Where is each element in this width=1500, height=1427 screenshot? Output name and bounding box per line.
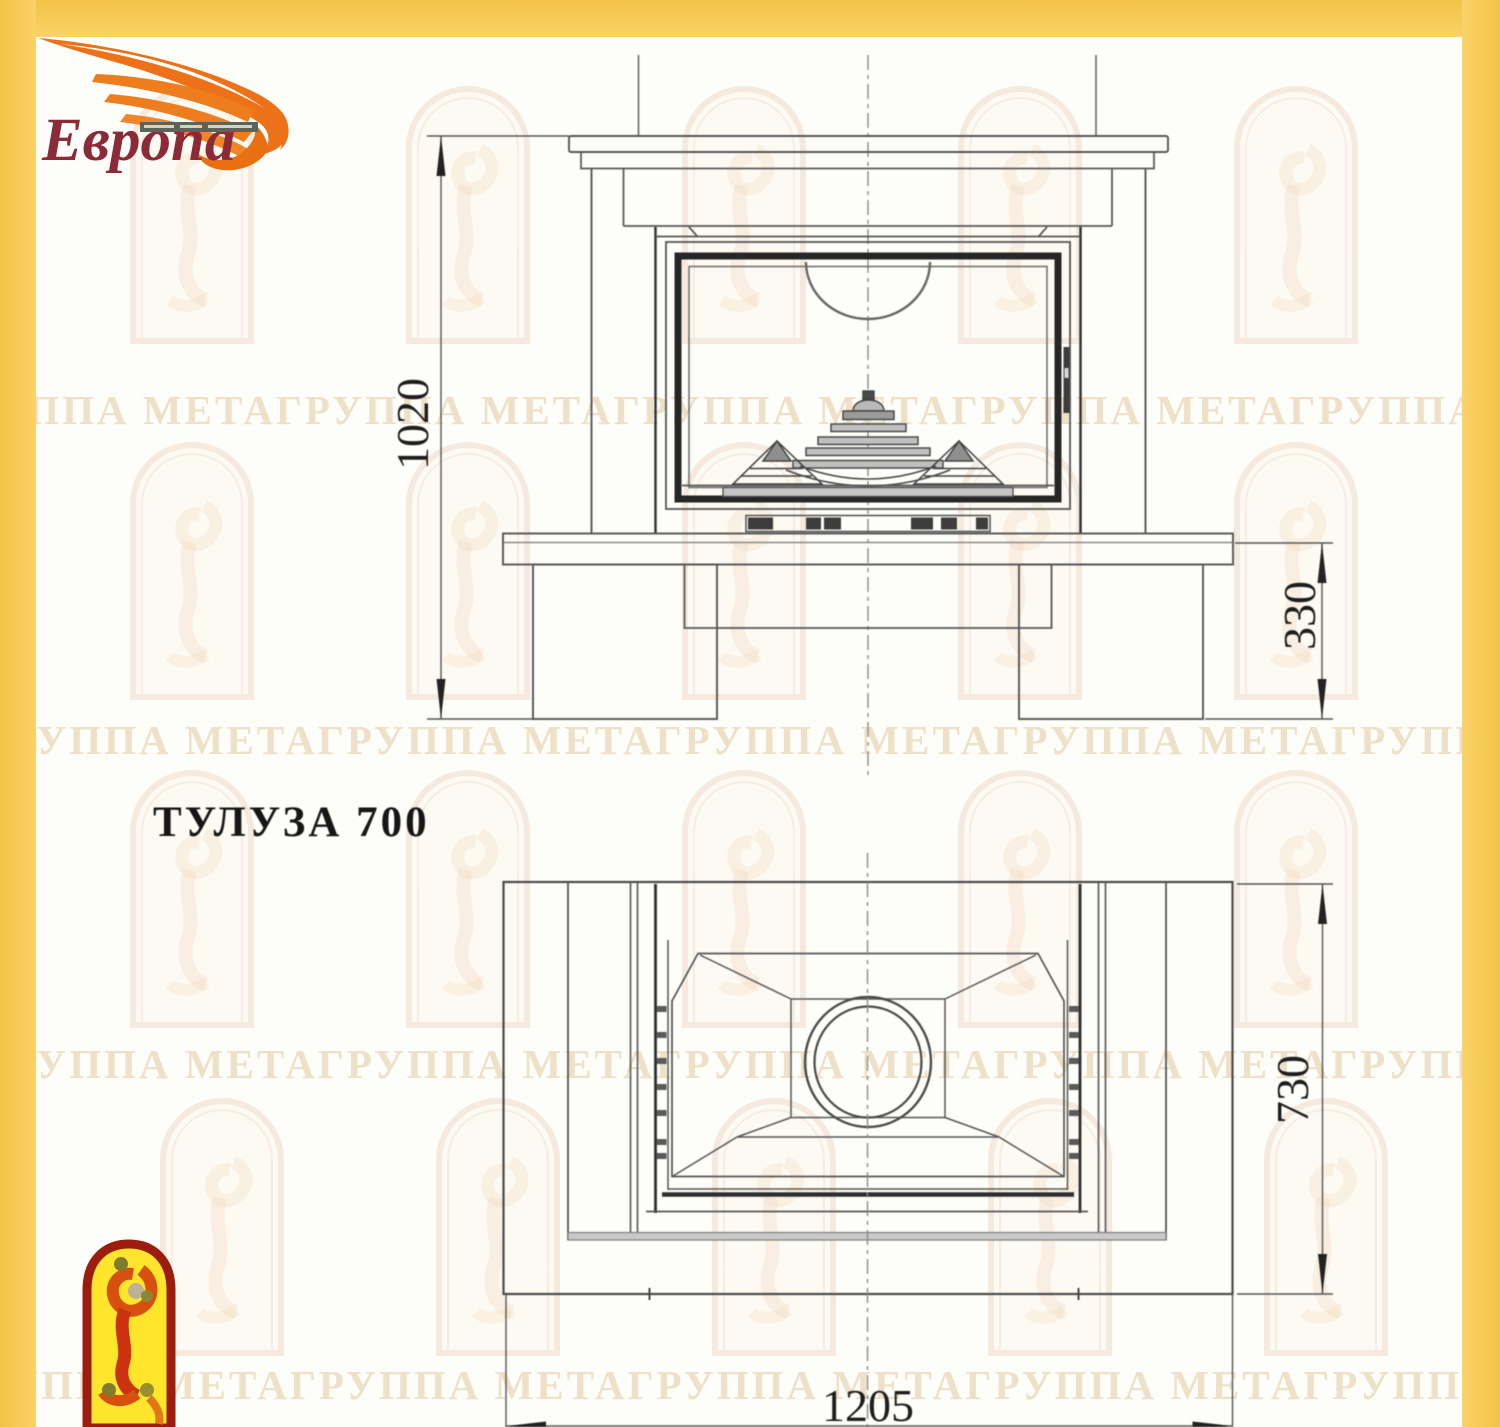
svg-text:Европа: Европа [41,107,235,174]
svg-text:1020: 1020 [387,378,438,470]
svg-text:330: 330 [1274,581,1325,650]
svg-text:ТУЛУЗА 700: ТУЛУЗА 700 [153,799,430,846]
svg-text:1205: 1205 [822,1380,914,1427]
svg-text:730: 730 [1267,1055,1318,1124]
